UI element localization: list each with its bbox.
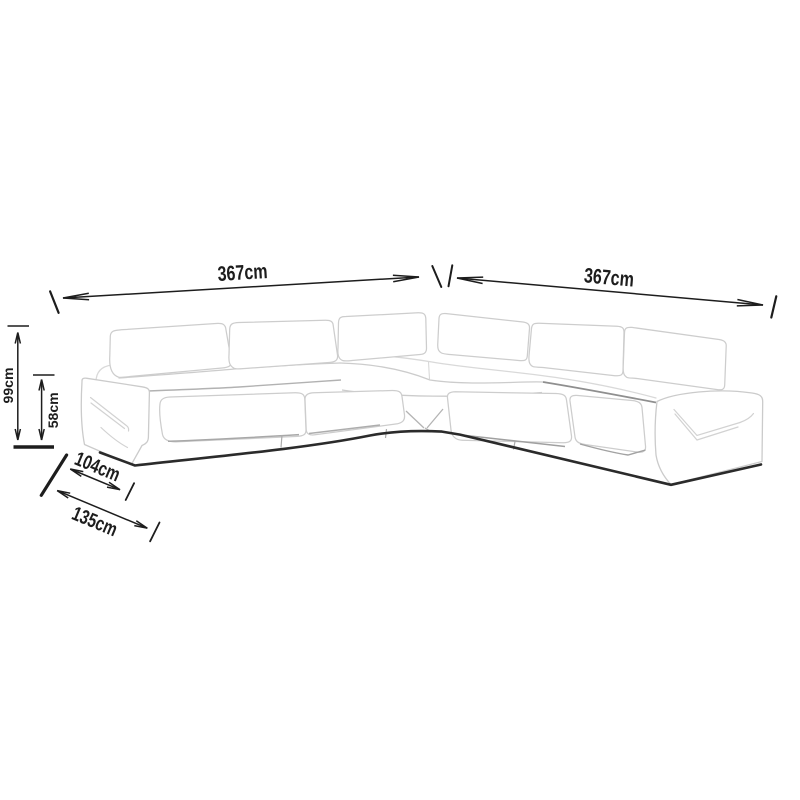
svg-text:58cm: 58cm <box>45 392 61 428</box>
svg-text:367cm: 367cm <box>583 264 635 291</box>
svg-text:367cm: 367cm <box>217 260 268 286</box>
svg-text:99cm: 99cm <box>0 368 16 404</box>
